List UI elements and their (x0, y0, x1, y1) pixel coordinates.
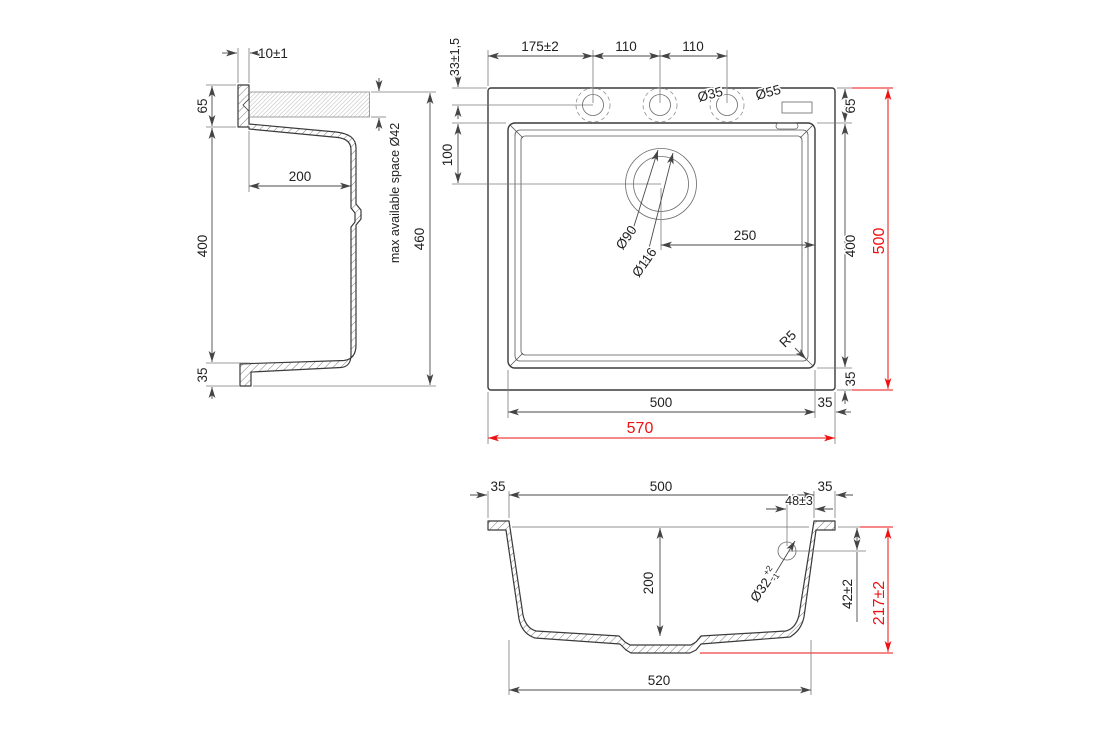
dim-wall-thickness: 10±1 (258, 46, 288, 61)
dim-overall-length: 500 (871, 228, 888, 255)
dim-base-width: 520 (648, 673, 671, 688)
side-section-view: 10±1 65 200 400 35 460 max available spa… (195, 46, 436, 399)
bowl-bevel (515, 130, 808, 361)
dim-rear-deck: 35 (843, 371, 858, 386)
plan-extension-lines (452, 50, 893, 444)
bowl-rim (508, 123, 815, 368)
dim-rim-left: 35 (490, 479, 505, 494)
dim-overflow-y-offset: 42±2 (840, 579, 855, 609)
bowl-bottom (521, 136, 802, 355)
dim-tap-hole-outer-diameter: Ø55 (754, 82, 783, 103)
dim-drain-outer-diameter: Ø116 (629, 245, 660, 280)
plan-dimension-lines (458, 56, 888, 438)
dim-overall-side: 460 (412, 228, 427, 251)
dim-drain-diameter: Ø90 (613, 223, 640, 253)
label-tap-space: max available space Ø42 (388, 123, 402, 263)
overflow-cover (782, 102, 812, 113)
technical-drawing: 10±1 65 200 400 35 460 max available spa… (0, 0, 1100, 750)
dim-bowl-length: 400 (843, 235, 858, 258)
dim-bowl-inner-width: 500 (650, 479, 673, 494)
dim-rear-flange: 35 (195, 367, 210, 382)
dim-rim-right: 35 (817, 479, 832, 494)
dim-bowl-width: 500 (650, 395, 673, 410)
tap-space-band (250, 92, 370, 117)
dim-overall-depth: 217±2 (871, 581, 888, 625)
dim-inner-width: 200 (289, 169, 312, 184)
dim-tap-first: 175±2 (521, 39, 558, 54)
dim-tap-hole-diameter: Ø35 (696, 84, 725, 105)
dim-overflow-x-offset: 48±3 (785, 494, 813, 508)
bowl-corner-chamfers (510, 125, 813, 366)
front-section-view: 35 500 35 48±3 Ø32 +2 -1 200 42±2 217±2 … (470, 479, 893, 695)
dim-bowl-depth: 200 (641, 572, 656, 595)
overflow-diameter-value: Ø32 (747, 575, 774, 605)
dim-drain-x-offset: 250 (734, 228, 757, 243)
dim-tap-pitch-1: 110 (615, 39, 637, 54)
top-plan-view: 33±1,5 175±2 110 110 Ø35 Ø55 65 100 Ø90 … (440, 38, 893, 444)
dim-tap-pitch-2: 110 (682, 39, 704, 54)
sink-section-profile (238, 85, 361, 386)
dim-tap-edge-offset: 33±1,5 (448, 38, 462, 76)
dim-side-deck: 35 (817, 395, 832, 410)
bowl-section-profile (488, 521, 835, 653)
dim-front-rim: 65 (195, 98, 210, 113)
dim-deck-depth: 65 (843, 98, 858, 113)
dim-overall-width: 570 (627, 420, 654, 437)
dim-corner-radius: R5 (776, 327, 799, 350)
drawing-canvas: 10±1 65 200 400 35 460 max available spa… (0, 0, 1100, 750)
overflow-slot (776, 123, 798, 129)
dim-drain-edge-offset: 100 (440, 144, 455, 167)
dim-bowl-span: 400 (195, 235, 210, 258)
